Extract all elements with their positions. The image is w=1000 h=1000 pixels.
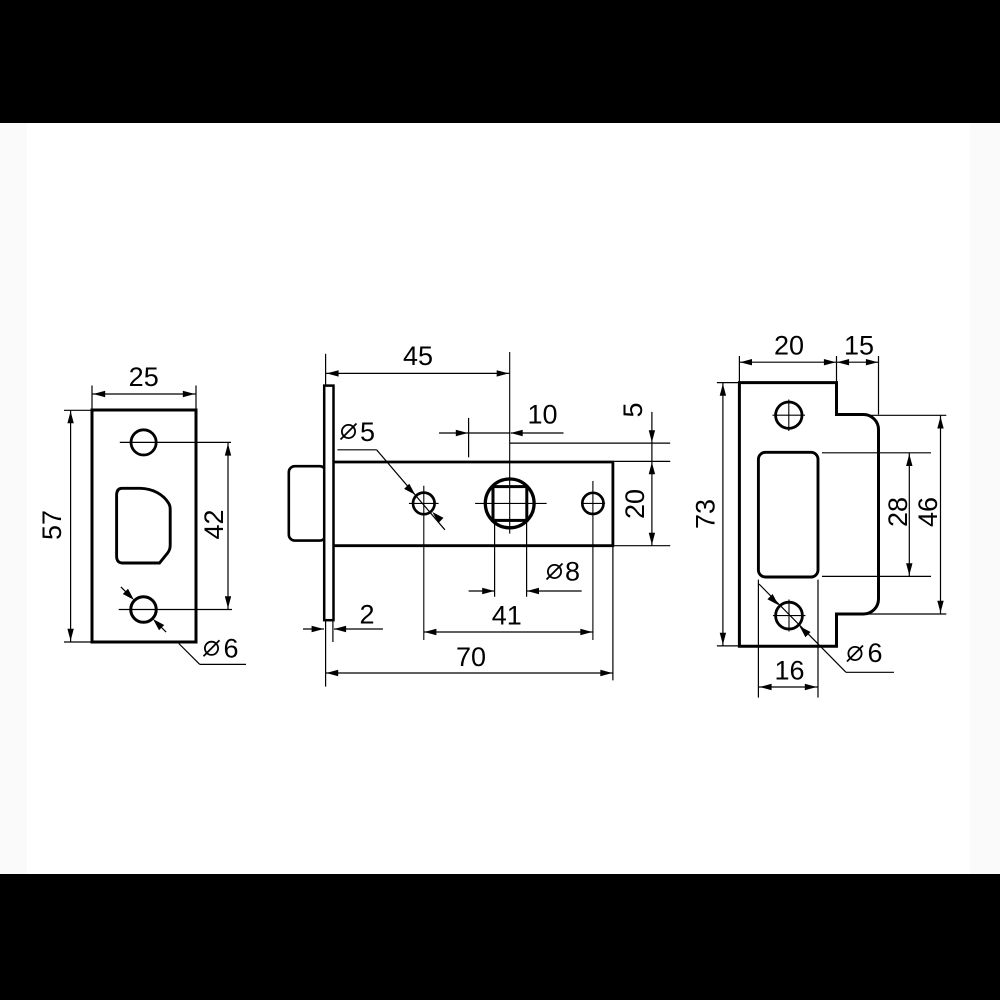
svg-text:8: 8 (565, 557, 580, 587)
svg-text:41: 41 (492, 601, 522, 631)
svg-text:6: 6 (223, 634, 238, 664)
svg-text:45: 45 (403, 341, 433, 371)
svg-text:20: 20 (620, 489, 650, 519)
svg-text:42: 42 (199, 509, 229, 539)
svg-text:70: 70 (456, 642, 486, 672)
svg-text:46: 46 (913, 497, 943, 527)
svg-text:25: 25 (129, 362, 159, 392)
svg-text:15: 15 (844, 331, 874, 361)
svg-text:10: 10 (527, 400, 557, 430)
svg-text:2: 2 (359, 600, 374, 630)
svg-text:6: 6 (867, 638, 882, 668)
svg-text:28: 28 (883, 497, 913, 527)
svg-text:73: 73 (691, 499, 721, 529)
svg-text:57: 57 (37, 510, 67, 540)
svg-text:5: 5 (618, 402, 648, 417)
svg-text:16: 16 (774, 656, 804, 686)
svg-text:20: 20 (774, 331, 804, 361)
svg-text:5: 5 (360, 417, 375, 447)
